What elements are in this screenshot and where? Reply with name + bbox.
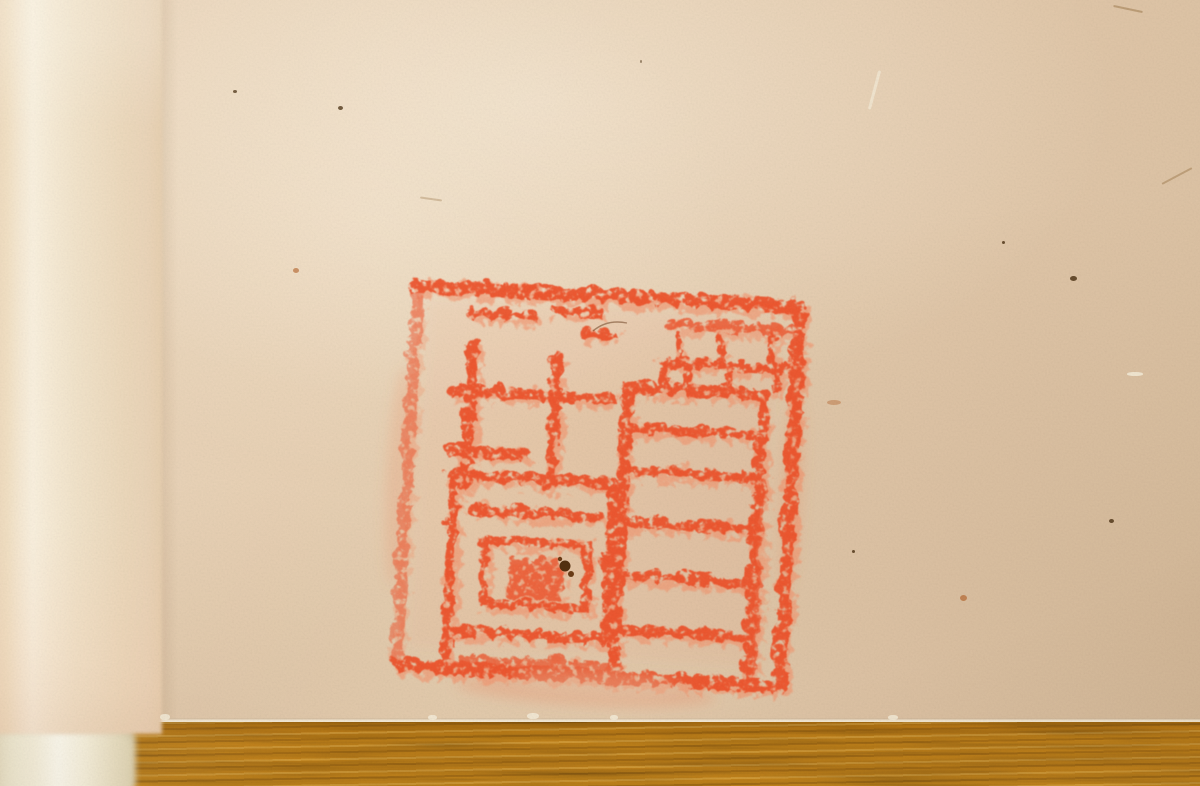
paper-fiber	[1113, 5, 1143, 13]
paper-speck	[640, 60, 642, 63]
scroll-photograph	[0, 0, 1200, 786]
paper-speck	[610, 715, 618, 720]
paper-speck	[888, 715, 898, 720]
paper-speck	[960, 595, 967, 601]
paper-speck	[428, 715, 437, 720]
paper-speck	[1127, 372, 1143, 376]
paper-speck	[160, 714, 170, 720]
paper-speck	[1070, 276, 1077, 281]
paper-fiber	[420, 196, 442, 201]
paper-speck	[338, 106, 343, 110]
paper-speck	[527, 713, 539, 719]
paper-speck	[1002, 241, 1005, 244]
feature-layer	[0, 0, 1200, 786]
paper-fiber	[868, 70, 881, 109]
paper-speck	[233, 90, 237, 93]
paper-fiber	[1162, 167, 1193, 185]
paper-speck	[293, 268, 299, 273]
paper-speck	[1109, 519, 1114, 523]
paper-speck	[852, 550, 855, 553]
paper-speck	[827, 400, 841, 405]
